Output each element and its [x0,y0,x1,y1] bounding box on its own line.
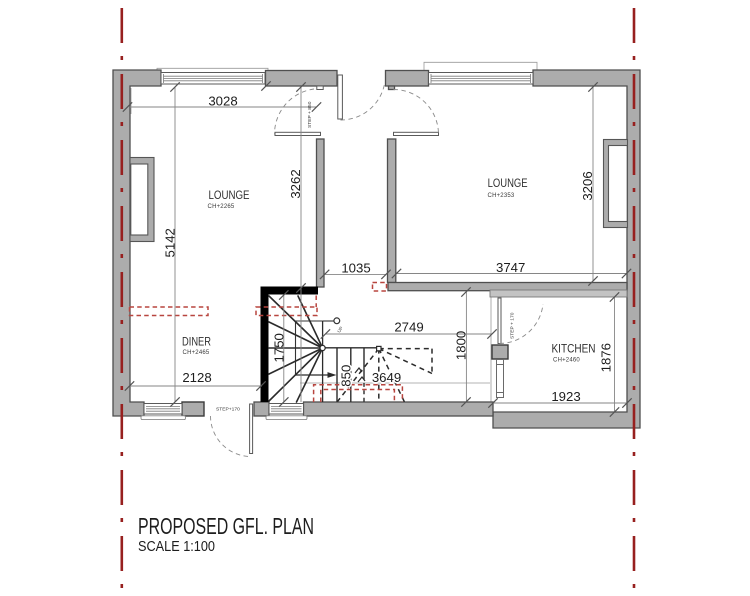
svg-text:STEP + 850: STEP + 850 [307,101,313,128]
svg-text:1035: 1035 [341,261,370,276]
svg-text:5142: 5142 [163,228,178,257]
svg-text:STEP + 170: STEP + 170 [510,312,516,339]
svg-text:CH+2460: CH+2460 [553,358,580,364]
svg-text:LOUNGE: LOUNGE [488,178,528,190]
svg-text:1800: 1800 [454,331,469,360]
svg-text:CH+2265: CH+2265 [208,204,235,210]
svg-text:KITCHEN: KITCHEN [552,343,596,355]
svg-text:CH+2353: CH+2353 [488,193,515,199]
svg-text:1923: 1923 [551,389,580,404]
svg-text:3649: 3649 [372,370,401,385]
svg-text:3747: 3747 [496,260,525,275]
svg-text:1750: 1750 [272,333,287,362]
svg-text:2749: 2749 [394,320,423,335]
svg-text:STEP+170: STEP+170 [216,407,240,413]
svg-text:3262: 3262 [288,169,303,198]
svg-text:CH+2465: CH+2465 [183,350,210,356]
svg-text:PROPOSED GFL. PLAN: PROPOSED GFL. PLAN [138,513,314,539]
svg-text:850: 850 [339,365,354,387]
svg-text:2128: 2128 [182,370,211,385]
svg-text:3028: 3028 [208,93,237,108]
svg-text:LOUNGE: LOUNGE [209,190,250,202]
svg-text:1876: 1876 [599,343,614,372]
svg-text:DINER: DINER [182,336,211,348]
svg-text:SCALE 1:100: SCALE 1:100 [138,539,215,555]
svg-text:3206: 3206 [580,171,595,200]
